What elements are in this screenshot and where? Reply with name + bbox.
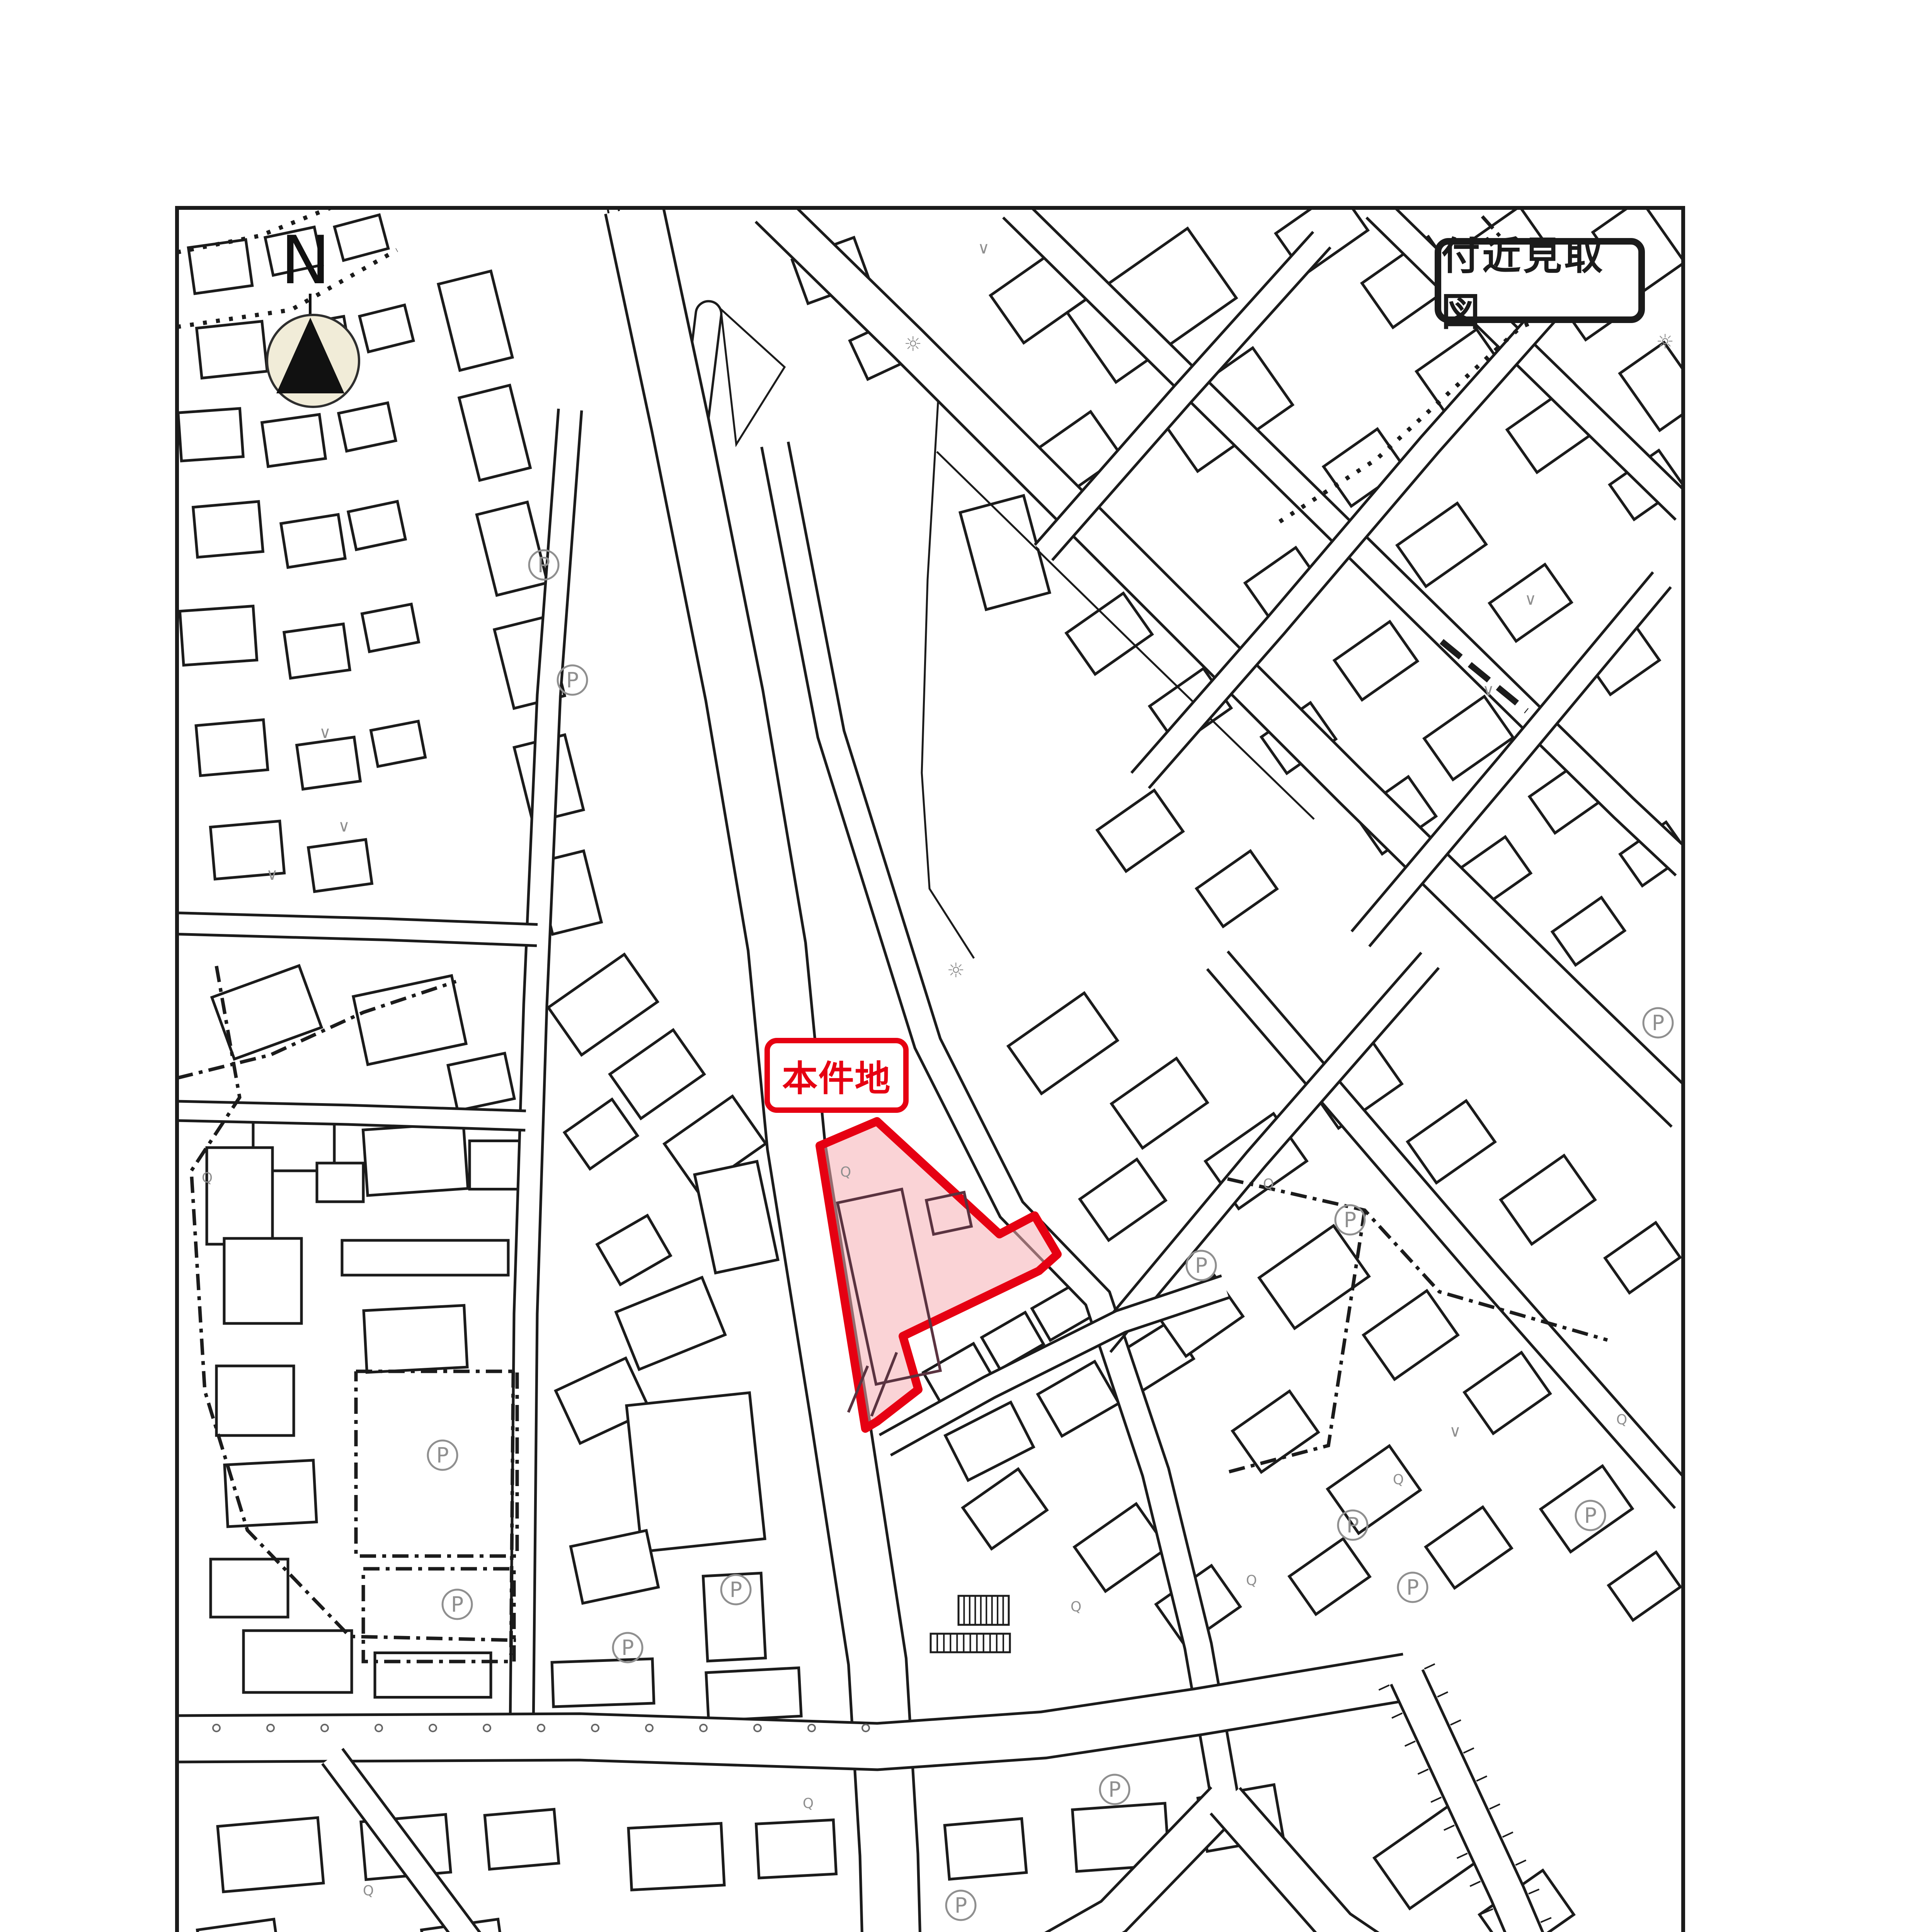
check-mark: ∨ (1525, 590, 1537, 609)
roadside-circle (484, 1725, 490, 1731)
north-arrow-icon (276, 318, 344, 393)
parking-symbol-letter: P (1406, 1575, 1419, 1600)
roadside-circle (267, 1725, 274, 1731)
parking-symbol-letter: P (1347, 1513, 1359, 1537)
survey-mark: Q (1616, 1412, 1627, 1428)
survey-mark: Q (363, 1883, 374, 1899)
north-letter: N (281, 227, 330, 294)
building-footprint (284, 624, 350, 678)
building-footprint (362, 604, 419, 652)
survey-mark: Q (1263, 1176, 1274, 1192)
subject-site-text: 本件地 (782, 1050, 891, 1101)
building-footprint (375, 1653, 491, 1697)
building-footprint (317, 1163, 363, 1202)
building-footprint (243, 1631, 352, 1692)
subject-site-label: 本件地 (764, 1038, 909, 1113)
check-mark: ∨ (1449, 1422, 1461, 1440)
roadside-circle (862, 1725, 869, 1731)
parking-symbol-letter: P (955, 1893, 967, 1918)
building-footprint (363, 1123, 468, 1196)
survey-mark: Q (803, 1796, 814, 1811)
parking-symbol-letter: P (538, 553, 550, 577)
roadside-circle (213, 1725, 220, 1731)
parking-symbol-letter: P (566, 668, 579, 692)
road-surface (177, 923, 537, 935)
building-footprint (485, 1809, 559, 1869)
building-footprint (627, 1393, 765, 1551)
building-footprint (297, 737, 361, 789)
building-footprint (371, 721, 426, 766)
check-mark: ∨ (319, 723, 331, 742)
sun-mark: ☼ (1656, 330, 1674, 354)
parking-symbol-letter: P (1344, 1208, 1357, 1232)
building-footprint (197, 321, 267, 378)
check-mark: ∨ (978, 238, 990, 257)
boundary-line (511, 1371, 513, 1655)
check-mark: ∨ (1483, 680, 1495, 699)
survey-mark: Q (1246, 1573, 1257, 1588)
building-footprint (364, 1305, 467, 1372)
parking-symbol-letter: P (1652, 1011, 1665, 1035)
building-footprint (180, 606, 257, 665)
building-footprint (178, 408, 243, 461)
parking-symbol-letter: P (1195, 1253, 1208, 1278)
building-footprint (224, 1238, 301, 1323)
parking-symbol-letter: P (621, 1636, 634, 1660)
parking-symbol-letter: P (436, 1443, 449, 1468)
roadside-circle (429, 1725, 436, 1731)
parking-symbol-letter: P (1108, 1777, 1121, 1802)
building-footprint (706, 1668, 801, 1721)
building-footprint (218, 1818, 323, 1892)
building-footprint (207, 1148, 272, 1244)
roadside-circle (646, 1725, 653, 1731)
sun-mark: ☼ (904, 333, 922, 356)
survey-mark: Q (1071, 1599, 1081, 1615)
hatch-strip (958, 1596, 1009, 1625)
roadside-circle (700, 1725, 707, 1731)
parking-symbol-letter: P (730, 1578, 742, 1602)
building-footprint (216, 1366, 294, 1435)
survey-mark: Q (1393, 1472, 1404, 1488)
sun-mark: ☼ (947, 959, 965, 982)
parking-symbol-letter: P (451, 1592, 464, 1617)
survey-mark: Q (202, 1170, 213, 1186)
building-footprint (308, 840, 372, 892)
check-mark: ∨ (338, 816, 350, 835)
building-footprint (262, 415, 326, 467)
roadside-circle (808, 1725, 815, 1731)
building-footprint (193, 502, 263, 557)
roadside-circle (375, 1725, 382, 1731)
building-footprint (211, 1559, 288, 1617)
parking-symbol-letter: P (1584, 1503, 1597, 1528)
survey-mark: Q (840, 1164, 851, 1180)
check-mark: ∨ (266, 865, 278, 884)
roadside-circle (321, 1725, 328, 1731)
building-footprint (756, 1820, 836, 1878)
map-title-box: 付近見取図 (1435, 238, 1645, 323)
building-footprint (945, 1819, 1026, 1879)
building-footprint (342, 1240, 508, 1275)
building-footprint (281, 514, 345, 567)
roadside-circle (538, 1725, 545, 1731)
roadside-circle (754, 1725, 761, 1731)
map-title: 付近見取図 (1441, 224, 1638, 337)
roadside-circle (592, 1725, 599, 1731)
building-footprint (196, 720, 268, 776)
building-footprint (225, 1460, 317, 1527)
building-footprint (628, 1823, 724, 1890)
building-footprint (448, 1053, 514, 1111)
building-footprint (552, 1659, 654, 1707)
building-footprint (188, 240, 252, 294)
vicinity-map-page: PPPPPPPPPPPPPPPPPPQQQQQQQQQQ∨∨∨∨∨∨∨☼☼☼Q1… (0, 0, 1917, 1932)
